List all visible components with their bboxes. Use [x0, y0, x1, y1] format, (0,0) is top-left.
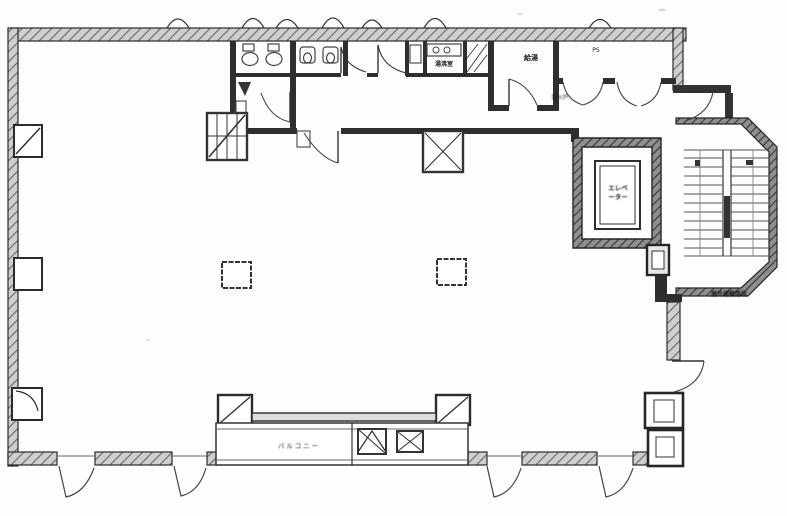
- double-fire-doors: [563, 82, 661, 106]
- top-wall-vent-marks: [167, 18, 611, 28]
- floor-plan-page: 湯沸室 給湯 PS 防火戸: [0, 0, 787, 516]
- fire-door-label: 防火戸: [552, 93, 569, 101]
- toilet-fixture: [238, 82, 251, 96]
- kitchenette: 湯沸室: [427, 44, 461, 68]
- right-lower-wall: [645, 275, 704, 466]
- urinal-room: [300, 47, 338, 63]
- hot-water-label: 給湯: [524, 53, 538, 62]
- door-arc: [509, 79, 537, 105]
- wc-basins: [242, 44, 282, 66]
- exterior-stair-label: 屋外避難階段: [711, 290, 747, 298]
- door-arc: [304, 133, 338, 163]
- column: [14, 258, 42, 290]
- column: [12, 388, 42, 420]
- door-arc: [487, 466, 521, 497]
- pipe-shaft-left: [207, 113, 247, 160]
- illegible-mark: [695, 160, 700, 166]
- pipe-space-label: PS: [592, 47, 600, 54]
- door-arc: [59, 466, 94, 497]
- elevator-label-line2: ーター: [608, 192, 628, 201]
- elevator-core: エレベ ーター: [573, 138, 669, 275]
- elevator-label-line1: エレベ: [608, 184, 628, 192]
- bottom-exit-doors: [59, 466, 633, 497]
- door-arc: [261, 93, 290, 122]
- interior-columns: [222, 259, 466, 288]
- column: [222, 262, 251, 288]
- outer-wall-top: [10, 28, 686, 41]
- top-rooms-right-band: 給湯 PS 防火戸: [488, 41, 676, 111]
- pipe-shaft-center: [423, 131, 463, 172]
- door-arc: [599, 466, 633, 497]
- illegible-mark: [746, 160, 753, 165]
- corridor: [243, 128, 579, 163]
- balcony: バルコニー: [216, 395, 470, 465]
- column: [437, 259, 466, 285]
- door-arc: [685, 92, 713, 121]
- door-arc: [174, 466, 206, 496]
- duct-slot: [467, 44, 487, 72]
- door-arc: [674, 361, 704, 392]
- floor-plan-drawing: 湯沸室 給湯 PS 防火戸: [0, 0, 787, 516]
- balcony-window-wall: [252, 413, 436, 421]
- closet-fixture: [410, 45, 421, 63]
- band-doors: [341, 45, 406, 73]
- balcony-label: バルコニー: [278, 442, 320, 450]
- exterior-stair-bay: 屋外避難階段: [676, 92, 777, 298]
- top-rooms-left-band: 湯沸室: [230, 41, 494, 131]
- kitchenette-label: 湯沸室: [435, 60, 453, 68]
